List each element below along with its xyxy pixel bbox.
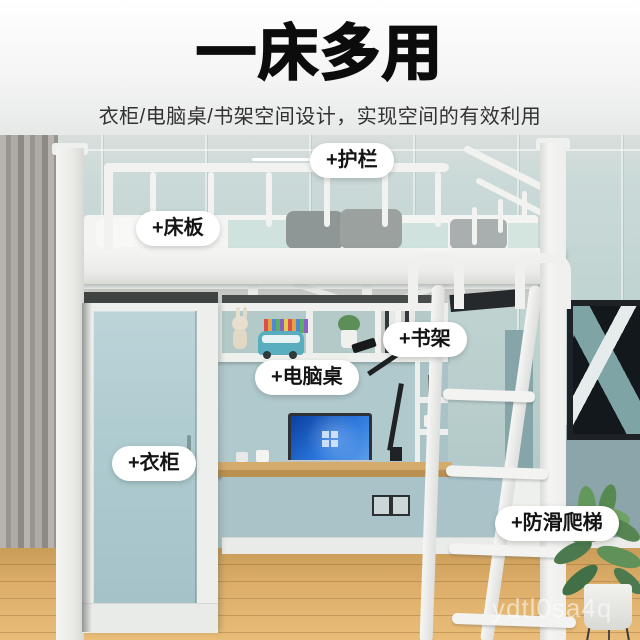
annotation-connector xyxy=(252,158,312,161)
gray-pillow xyxy=(340,209,402,249)
plush-bunny-body xyxy=(233,329,247,349)
label-antislip-ladder: +防滑爬梯 xyxy=(495,506,619,541)
label-bookshelf: +书架 xyxy=(383,322,467,357)
desk-front-edge xyxy=(215,470,452,477)
desk-top xyxy=(215,462,452,470)
plant-stand-leg xyxy=(626,628,632,640)
wardrobe-plinth xyxy=(82,603,218,633)
bed-post-left xyxy=(56,148,84,640)
plant-stand-leg xyxy=(584,628,590,640)
guardrail-baluster xyxy=(382,172,388,227)
room-photo: ydtl0sa4q +护栏 +床板 +书架 +电脑桌 +衣柜 +防滑爬梯 xyxy=(0,135,640,640)
toy-bus-windows xyxy=(262,335,300,343)
page-subtitle: 衣柜/电脑桌/书架空间设计，实现空间的有效利用 xyxy=(0,100,640,129)
windows-logo xyxy=(322,431,338,447)
wardrobe-left-shadow xyxy=(82,303,92,632)
ladder-hook xyxy=(515,253,571,309)
desk-accessory xyxy=(236,452,248,462)
product-poster: 一床多用 衣柜/电脑桌/书架空间设计，实现空间的有效利用 xyxy=(0,0,640,640)
toy-bus-wheel xyxy=(263,351,271,359)
desk-mug xyxy=(256,450,269,462)
gray-pillow xyxy=(286,211,344,249)
wardrobe-door-seam xyxy=(195,311,197,603)
guardrail-corner-post xyxy=(104,163,113,251)
framed-artwork xyxy=(567,300,640,440)
wall-switch xyxy=(391,495,410,516)
side-rail-baluster xyxy=(522,191,527,221)
side-rail-baluster xyxy=(498,199,503,233)
page-title: 一床多用 xyxy=(0,14,640,94)
label-guardrail: +护栏 xyxy=(310,143,394,178)
laptop-screen xyxy=(288,413,372,466)
bed-platform xyxy=(60,248,566,284)
guardrail-baluster xyxy=(435,172,441,227)
guardrail-baluster xyxy=(324,172,330,227)
wall-switch xyxy=(372,495,391,516)
watermark: ydtl0sa4q xyxy=(492,593,612,624)
side-shelf-frame xyxy=(415,362,420,465)
label-bed-board: +床板 xyxy=(136,211,220,246)
guardrail-top-rail xyxy=(104,163,449,172)
side-rail-baluster xyxy=(472,207,477,245)
plant-stand-leg xyxy=(608,630,610,640)
guardrail-baluster xyxy=(266,172,272,227)
bookshelf-divider xyxy=(306,311,313,355)
label-wardrobe: +衣柜 xyxy=(112,446,196,481)
label-computer-desk: +电脑桌 xyxy=(255,360,359,395)
